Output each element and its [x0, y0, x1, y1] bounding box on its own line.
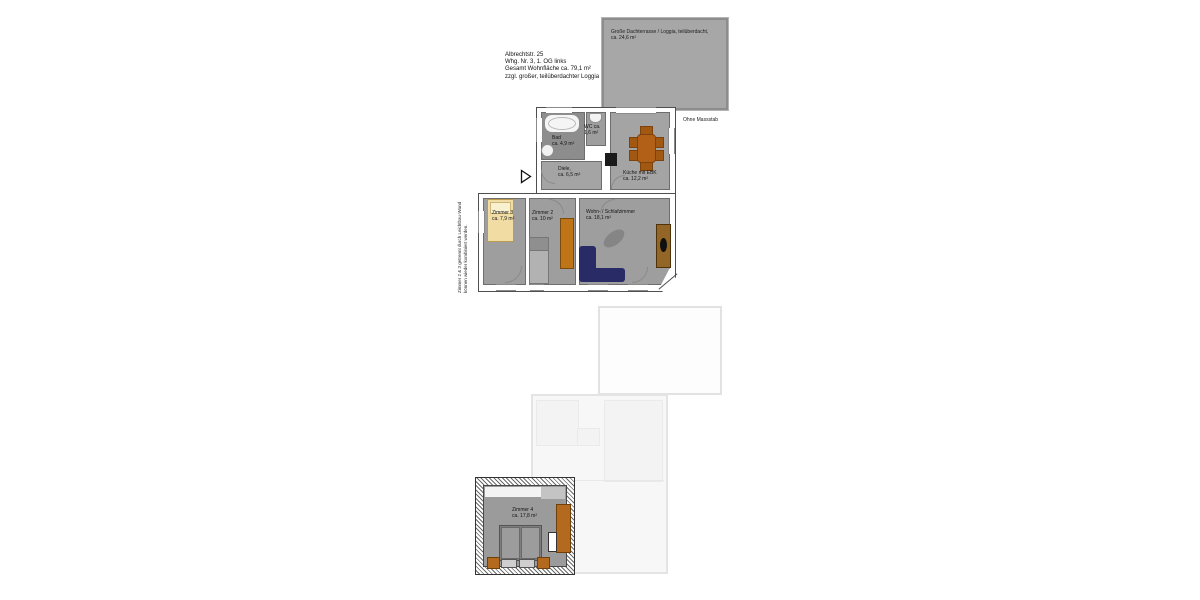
nightstand-icon — [519, 559, 535, 568]
ghost-room — [577, 428, 600, 446]
floorplan-canvas: Große Dachterrasse / Loggia, teilüberdac… — [0, 0, 1200, 600]
window-marker — [530, 284, 544, 291]
wardrobe-icon — [560, 218, 574, 269]
window-marker — [588, 284, 608, 291]
nightstand-icon — [501, 559, 517, 568]
window-marker — [668, 128, 675, 154]
double-bed-icon — [499, 525, 542, 561]
terrace-label: Große Dachterrasse / Loggia, teilüberdac… — [611, 29, 708, 41]
window-marker — [616, 107, 656, 114]
plan-header: Albrechtstr. 25 Whg. Nr. 3, 1. OG links … — [505, 52, 599, 81]
dresser-icon — [487, 557, 500, 569]
toilet-icon — [589, 113, 602, 123]
ghost-terrace-outline — [598, 306, 722, 395]
partition-note-line2: können wieder kombiniert werden. — [463, 185, 469, 293]
scale-note: Ohne Massstab — [683, 117, 718, 123]
sideboard-icon — [656, 224, 671, 268]
terrace-area: Große Dachterrasse / Loggia, teilüberdac… — [602, 18, 728, 110]
window-marker — [478, 211, 485, 233]
terrace-size: ca. 24,6 m² — [611, 35, 708, 41]
window-marker — [485, 487, 541, 497]
room-label-zimmer4: Zimmer 4 ca. 17,8 m² — [512, 508, 537, 519]
window-marker — [628, 284, 648, 291]
bathtub-icon — [544, 114, 580, 133]
window-marker — [496, 284, 516, 291]
window-marker — [546, 107, 572, 114]
header-unit: Whg. Nr. 3, 1. OG links — [505, 59, 599, 66]
dormer-patch — [541, 487, 565, 499]
dresser-icon — [537, 557, 550, 569]
room-label-zimmer3: Zimmer 3 ca. 7,9 m² — [492, 211, 514, 222]
ghost-room — [604, 400, 663, 482]
sofa-icon — [579, 268, 625, 282]
entrance-arrow-icon — [520, 169, 532, 184]
partition-note: Zimmer 2 & 3 getrennt durch Leichtbau-Wa… — [457, 185, 469, 293]
door-leaf — [548, 532, 557, 552]
partition-note-line1: Zimmer 2 & 3 getrennt durch Leichtbau-Wa… — [457, 185, 463, 293]
dining-table-icon — [628, 125, 665, 171]
room-label-wc: WC ca. 1,6 m² — [584, 125, 600, 136]
stove-icon — [605, 153, 617, 166]
header-area: Gesamt Wohnfläche ca. 79,1 m² — [505, 66, 599, 73]
bed-icon — [529, 237, 549, 284]
window-marker — [536, 118, 543, 142]
header-loggia: zzgl. großer, teilüberdachter Loggia — [505, 74, 599, 81]
wardrobe-icon — [556, 504, 571, 553]
room-label-diele: Diele, ca. 6,5 m² — [558, 167, 580, 178]
header-address: Albrechtstr. 25 — [505, 52, 599, 59]
room-label-kueche: Küche mit EBK ca. 12,2 m² — [623, 171, 657, 182]
ghost-room — [536, 400, 579, 446]
room-zimmer4: Zimmer 4 ca. 17,8 m² — [475, 477, 575, 575]
zimmer4-floor: Zimmer 4 ca. 17,8 m² — [483, 485, 567, 567]
